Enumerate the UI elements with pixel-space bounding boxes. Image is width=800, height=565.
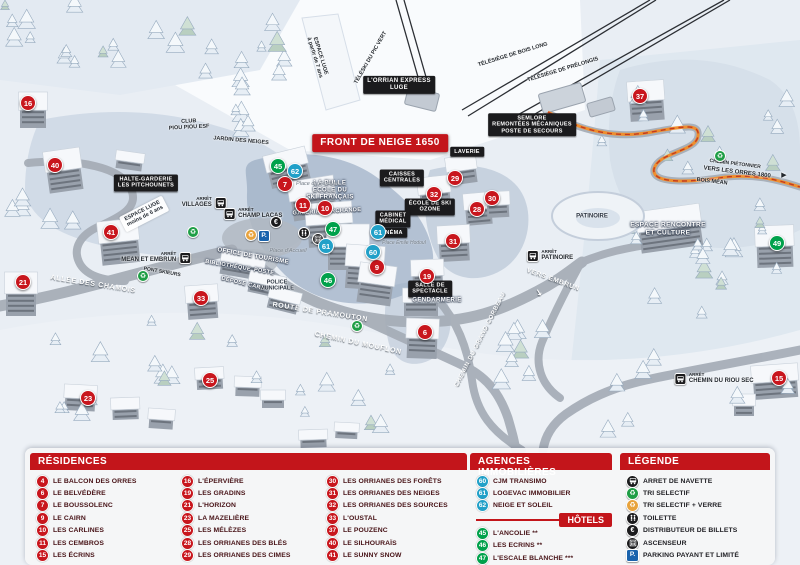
legend-list: ARRET DE NAVETTE♻TRI SELECTIF♻TRI SELECT… bbox=[620, 470, 770, 562]
wc-icon bbox=[298, 227, 310, 239]
bus-stop-chemin-du-riou-sec: ARRÊTCHEMIN DU RIOU SEC bbox=[674, 373, 753, 385]
map-marker-62: 62 bbox=[287, 163, 303, 179]
map-marker-19: 19 bbox=[419, 268, 435, 284]
number-badge: 16 bbox=[181, 475, 194, 488]
number-badge: 33 bbox=[326, 512, 339, 525]
map-label-l-orrian-express-luge: L'ORRIAN EXPRESSLUGE bbox=[363, 76, 435, 94]
map-marker-25: 25 bbox=[202, 372, 218, 388]
number-badge: 41 bbox=[326, 549, 339, 562]
legend-item-parking-payant-et-limit: P.PARKING PAYANT ET LIMITÉ bbox=[626, 549, 770, 561]
number-badge: 7 bbox=[36, 499, 49, 512]
item-label: LES ORRIANES DES CIMES bbox=[198, 552, 290, 559]
bus-stop-label: ARRÊTCHEMIN DU RIOU SEC bbox=[689, 373, 754, 384]
map-label-semlore-remont-es-m-caniques-poste-de-secours: SEMLOREREMONTÉES MÉCANIQUESPOSTE DE SECO… bbox=[488, 113, 576, 136]
euro-icon: € bbox=[270, 216, 282, 228]
verre-icon: ♻ bbox=[245, 229, 257, 241]
euro-icon: € bbox=[626, 524, 639, 537]
item-label: PARKING PAYANT ET LIMITÉ bbox=[643, 552, 739, 559]
map-marker-37: 37 bbox=[632, 88, 648, 104]
map-marker-28: 28 bbox=[469, 201, 485, 217]
bus-stop-villages: ARRÊTVILLAGES bbox=[182, 197, 227, 209]
number-badge: 32 bbox=[326, 499, 339, 512]
hotel-item-46: 46LES ECRINS ** bbox=[476, 540, 612, 552]
map-marker-60: 60 bbox=[365, 244, 381, 260]
item-label: CJM TRANSIMO bbox=[493, 478, 547, 485]
number-badge: 45 bbox=[476, 527, 489, 540]
residence-item-29: 29LES ORRIANES DES CIMES bbox=[181, 549, 320, 561]
map-marker-10: 10 bbox=[317, 200, 333, 216]
map-marker-41: 41 bbox=[103, 224, 119, 240]
agency-item-62: 62NEIGE ET SOLEIL bbox=[476, 500, 612, 512]
resort-map-page: FRONT DE NEIGE 1650L'ORRIAN EXPRESSLUGES… bbox=[0, 0, 800, 565]
hotels-header: HÔTELS bbox=[559, 513, 612, 527]
map-marker-29: 29 bbox=[447, 170, 463, 186]
item-label: ASCENSEUR bbox=[643, 540, 687, 547]
number-badge: 31 bbox=[326, 487, 339, 500]
number-badge: 30 bbox=[326, 475, 339, 488]
front-de-neige-banner: FRONT DE NEIGE 1650 bbox=[312, 134, 448, 152]
item-label: L'ESCALE BLANCHE *** bbox=[493, 555, 573, 562]
recycle-icon: ♻ bbox=[137, 270, 149, 282]
hotel-item-45: 45L'ANCOLIE ** bbox=[476, 527, 612, 539]
map-marker-61: 61 bbox=[370, 224, 386, 240]
item-label: LE CAIRN bbox=[53, 515, 86, 522]
bus-stop-icon bbox=[674, 373, 686, 385]
map-marker-23: 23 bbox=[80, 390, 96, 406]
hotels-divider bbox=[476, 519, 559, 521]
item-label: LES ORRIANES DES SOURCES bbox=[343, 502, 448, 509]
number-badge: 28 bbox=[181, 537, 194, 550]
recycle-icon: ♻ bbox=[626, 487, 639, 500]
bus-stop-patinoire: ARRÊTPATINOIRE bbox=[527, 250, 573, 262]
hotel-item-47: 47L'ESCALE BLANCHE *** bbox=[476, 552, 612, 564]
number-badge: 46 bbox=[476, 539, 489, 552]
map-marker-15: 15 bbox=[771, 370, 787, 386]
map-marker-7: 7 bbox=[277, 176, 293, 192]
map-label-biblioth-que: BIBLIOTHÈQUE bbox=[205, 259, 252, 273]
number-badge: 15 bbox=[36, 549, 49, 562]
agency-item-60: 60CJM TRANSIMO bbox=[476, 475, 612, 487]
legend-item-tri-selectif-verre: ♻TRI SELECTIF + VERRE bbox=[626, 500, 770, 512]
map-label-label: ↘ bbox=[534, 287, 545, 299]
item-label: LES ECRINS ** bbox=[493, 542, 542, 549]
map-label-poste: POSTE bbox=[253, 267, 274, 277]
item-label: LES ORRIANES DES BLÉS bbox=[198, 540, 287, 547]
map-marker-30: 30 bbox=[484, 190, 500, 206]
number-badge: 11 bbox=[36, 537, 49, 550]
residences-column-1: 4LE BALCON DES ORRES6LE BELVÉDÈRE7LE BOU… bbox=[30, 470, 175, 562]
wc-icon bbox=[626, 512, 639, 525]
map-label-club-piou-piou-esf: CLUBPIOU PIOU ESF bbox=[168, 117, 209, 132]
map-marker-11: 11 bbox=[295, 197, 311, 213]
residence-item-31: 31LES ORRIANES DES NEIGES bbox=[326, 487, 465, 499]
recycle-icon: ♻ bbox=[187, 226, 199, 238]
item-label: LES GRADINS bbox=[198, 490, 246, 497]
number-badge: 61 bbox=[476, 487, 489, 500]
map-label-place-mile-hodoul: Place Émile Hodoul bbox=[382, 241, 426, 247]
item-label: TOILETTE bbox=[643, 515, 677, 522]
map-label-d-pose-cars: DÉPOSE CARS bbox=[221, 275, 266, 292]
number-badge: 19 bbox=[181, 487, 194, 500]
item-label: LES MÉLÈZES bbox=[198, 527, 246, 534]
residence-item-4: 4LE BALCON DES ORRES bbox=[36, 475, 175, 487]
residence-item-16: 16L'ÉPERVIÈRE bbox=[181, 475, 320, 487]
residence-item-9: 9LE CAIRN bbox=[36, 512, 175, 524]
map-marker-46: 46 bbox=[320, 272, 336, 288]
residences-column-3: 30LES ORRIANES DES FORÊTS31LES ORRIANES … bbox=[320, 470, 465, 562]
residence-item-25: 25LES MÉLÈZES bbox=[181, 525, 320, 537]
number-badge: 40 bbox=[326, 537, 339, 550]
lift-icon bbox=[626, 537, 639, 550]
number-badge: 6 bbox=[36, 487, 49, 500]
map-label-caisses-centrales: CAISSESCENTRALES bbox=[380, 170, 424, 187]
map-marker-47: 47 bbox=[325, 221, 341, 237]
residences-column-2: 16L'ÉPERVIÈRE19LES GRADINS21L'HORIZON23L… bbox=[175, 470, 320, 562]
item-label: L'ÉPERVIÈRE bbox=[198, 478, 244, 485]
item-label: NEIGE ET SOLEIL bbox=[493, 502, 553, 509]
map-marker-45: 45 bbox=[270, 158, 286, 174]
number-badge: 37 bbox=[326, 524, 339, 537]
map-label-gendarmerie: GENDARMERIE bbox=[412, 297, 461, 304]
item-label: LE BOUSSOLENC bbox=[53, 502, 113, 509]
recycle-icon: ♻ bbox=[714, 150, 726, 162]
number-badge: 9 bbox=[36, 512, 49, 525]
residence-item-32: 32LES ORRIANES DES SOURCES bbox=[326, 500, 465, 512]
residence-item-23: 23LA MAZELIÈRE bbox=[181, 512, 320, 524]
item-label: LES ÉCRINS bbox=[53, 552, 95, 559]
verre-icon: ♻ bbox=[626, 499, 639, 512]
residence-item-6: 6LE BELVÉDÈRE bbox=[36, 487, 175, 499]
number-badge: 10 bbox=[36, 524, 49, 537]
item-label: LES CARLINES bbox=[53, 527, 104, 534]
map-label-t-l-si-ge-de-bois-long: TÉLÉSIÈGE DE BOIS LONG bbox=[477, 41, 548, 68]
bus-stop-label: ARRÊTVILLAGES bbox=[182, 197, 212, 208]
map-label-bois-m-an: BOIS MÉAN bbox=[696, 177, 728, 187]
map-label-all-e-des-chamois: ALLÉE DES CHAMOIS bbox=[50, 274, 136, 296]
number-badge: 60 bbox=[476, 475, 489, 488]
map-label-patinoire: PATINOIRE bbox=[576, 213, 608, 220]
residence-item-33: 33L'OUSTAL bbox=[326, 512, 465, 524]
bus-stop-label: ARRÊTMEAN ET EMBRUN bbox=[121, 252, 176, 263]
number-badge: 62 bbox=[476, 499, 489, 512]
park-icon: P. bbox=[626, 549, 639, 562]
bus-stop-icon bbox=[179, 252, 191, 264]
hotels-header-row: HÔTELS bbox=[476, 513, 612, 526]
map-label-place-d-accueil: Place d'Accueil bbox=[269, 248, 306, 254]
item-label: TRI SELECTIF + VERRE bbox=[643, 502, 722, 509]
bus-stop-icon bbox=[527, 250, 539, 262]
map-marker-31: 31 bbox=[445, 233, 461, 249]
bottom-legend-panel: RÉSIDENCES 4LE BALCON DES ORRES6LE BELVÉ… bbox=[25, 448, 775, 565]
map-label-vers-embrun: VERS EMBRUN bbox=[526, 267, 581, 293]
map-marker-61: 61 bbox=[318, 238, 334, 254]
map-label-laverie: LAVERIE bbox=[450, 147, 484, 157]
map-label-espace-luge-partir-de-7-ans: ESPACE LUGEà partir de 7 ans bbox=[305, 35, 330, 79]
residence-item-30: 30LES ORRIANES DES FORÊTS bbox=[326, 475, 465, 487]
residence-item-28: 28LES ORRIANES DES BLÉS bbox=[181, 537, 320, 549]
map-label-jardin-des-neiges: JARDIN DES NEIGES bbox=[213, 135, 269, 146]
map-marker-32: 32 bbox=[426, 186, 442, 202]
hotels-list: 45L'ANCOLIE **46LES ECRINS **47L'ESCALE … bbox=[470, 527, 612, 565]
bus-stop-mean-et-embrun: ARRÊTMEAN ET EMBRUN bbox=[121, 252, 191, 264]
map-marker-49: 49 bbox=[769, 235, 785, 251]
agency-item-61: 61LOGEVAC IMMOBILIER bbox=[476, 487, 612, 499]
item-label: LE SUNNY SNOW bbox=[343, 552, 402, 559]
legend-section: LÉGENDE ARRET DE NAVETTE♻TRI SELECTIF♻TR… bbox=[620, 453, 770, 562]
number-badge: 25 bbox=[181, 524, 194, 537]
map-marker-33: 33 bbox=[193, 290, 209, 306]
item-label: ARRET DE NAVETTE bbox=[643, 478, 712, 485]
map-label-police-municipale: POLICEMUNICIPALE bbox=[260, 280, 294, 293]
item-label: LE BELVÉDÈRE bbox=[53, 490, 106, 497]
item-label: LOGEVAC IMMOBILIER bbox=[493, 490, 571, 497]
item-label: L'OUSTAL bbox=[343, 515, 377, 522]
number-badge: 29 bbox=[181, 549, 194, 562]
park-icon: P. bbox=[258, 230, 270, 242]
map-label-espace-rencontre-et-culture: ESPACE RENCONTREET CULTURE bbox=[630, 221, 706, 236]
agencies-section: AGENCES IMMOBILIÈRES 60CJM TRANSIMO61LOG… bbox=[470, 453, 612, 565]
item-label: L'ANCOLIE ** bbox=[493, 530, 538, 537]
map-marker-16: 16 bbox=[20, 95, 36, 111]
item-label: LES CEMBROS bbox=[53, 540, 104, 547]
item-label: L'HORIZON bbox=[198, 502, 236, 509]
item-label: DISTRIBUTEUR DE BILLETS bbox=[643, 527, 737, 534]
residence-item-15: 15LES ÉCRINS bbox=[36, 549, 175, 561]
item-label: TRI SELECTIF bbox=[643, 490, 690, 497]
number-badge: 4 bbox=[36, 475, 49, 488]
item-label: LES ORRIANES DES FORÊTS bbox=[343, 478, 442, 485]
map-label-t-l-si-ge-de-pr-longis: TÉLÉSIÈGE DE PRÉLONGIS bbox=[527, 56, 600, 84]
legend-item-ascenseur: ASCENSEUR bbox=[626, 537, 770, 549]
item-label: LES ORRIANES DES NEIGES bbox=[343, 490, 440, 497]
number-badge: 21 bbox=[181, 499, 194, 512]
legend-item-arret-de-navette: ARRET DE NAVETTE bbox=[626, 475, 770, 487]
residence-item-40: 40LE SILHOURAÏS bbox=[326, 537, 465, 549]
map-label-halte-garderie-les-pitchounets: HALTE-GARDERIELES PITCHOUNETS bbox=[114, 175, 178, 192]
recycle-icon: ♻ bbox=[351, 320, 363, 332]
agencies-header: AGENCES IMMOBILIÈRES bbox=[470, 453, 612, 470]
residence-item-37: 37LE POUZENC bbox=[326, 525, 465, 537]
map-marker-40: 40 bbox=[47, 157, 63, 173]
residence-item-11: 11LES CEMBROS bbox=[36, 537, 175, 549]
map-marker-6: 6 bbox=[417, 324, 433, 340]
legend-item-tri-selectif: ♻TRI SELECTIF bbox=[626, 487, 770, 499]
number-badge: 23 bbox=[181, 512, 194, 525]
legend-header: LÉGENDE bbox=[620, 453, 770, 470]
residence-item-10: 10LES CARLINES bbox=[36, 525, 175, 537]
map-label-chemin-du-grand-corbeau: CHEMIN DU GRAND CORBEAU bbox=[454, 291, 508, 388]
residence-item-7: 7LE BOUSSOLENC bbox=[36, 500, 175, 512]
bus-stop-icon bbox=[224, 208, 236, 220]
residence-item-21: 21L'HORIZON bbox=[181, 500, 320, 512]
residence-item-19: 19LES GRADINS bbox=[181, 487, 320, 499]
residences-header: RÉSIDENCES bbox=[30, 453, 467, 470]
legend-item-distributeur-de-billets: €DISTRIBUTEUR DE BILLETS bbox=[626, 525, 770, 537]
navette-icon bbox=[626, 475, 639, 488]
item-label: LA MAZELIÈRE bbox=[198, 515, 249, 522]
map-label-label: ▶ bbox=[781, 172, 786, 180]
map-label-place-du-festival: Place du Festival bbox=[296, 181, 338, 187]
residences-section: RÉSIDENCES 4LE BALCON DES ORRES6LE BELVÉ… bbox=[30, 453, 467, 562]
item-label: LE BALCON DES ORRES bbox=[53, 478, 136, 485]
item-label: LE SILHOURAÏS bbox=[343, 540, 397, 547]
map-marker-9: 9 bbox=[369, 259, 385, 275]
number-badge: 47 bbox=[476, 552, 489, 565]
bus-stop-label: ARRÊTPATINOIRE bbox=[541, 250, 573, 261]
residence-item-41: 41LE SUNNY SNOW bbox=[326, 549, 465, 561]
item-label: LE POUZENC bbox=[343, 527, 388, 534]
legend-item-toilette: TOILETTE bbox=[626, 512, 770, 524]
map-marker-21: 21 bbox=[15, 274, 31, 290]
residences-columns: 4LE BALCON DES ORRES6LE BELVÉDÈRE7LE BOU… bbox=[30, 470, 467, 562]
map-label-chemin-du-mouflon: CHEMIN DU MOUFLON bbox=[314, 331, 403, 358]
map-label-espace-luge-moins-de-6-ans: ESPACE LUGEmoins de 6 ans bbox=[119, 196, 169, 233]
